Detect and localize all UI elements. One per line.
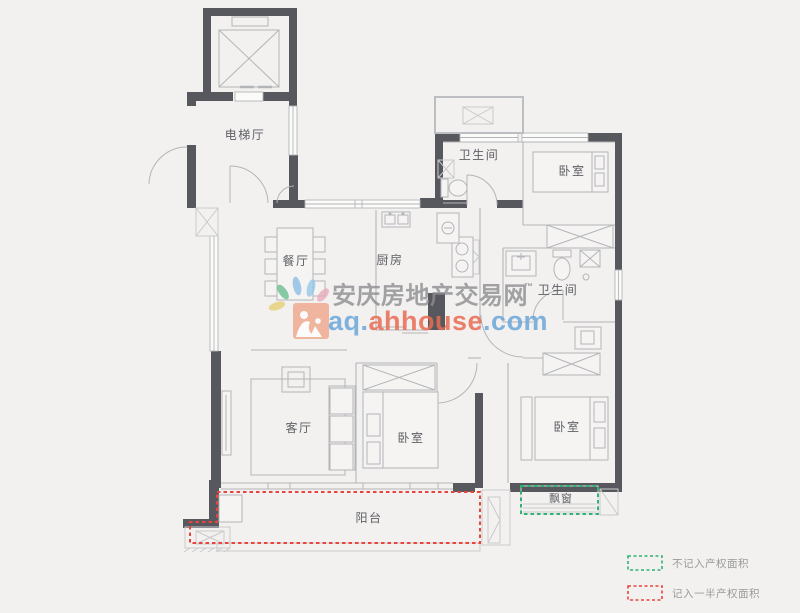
balcony-box — [219, 495, 242, 522]
label-bedroom-mid: 卧室 — [397, 430, 424, 445]
label-bay-window: 飘窗 — [549, 491, 573, 505]
legend-label-not-counted: 不记入产权面积 — [672, 557, 749, 570]
kitchen-sink — [382, 212, 410, 227]
watermark: 安庆房地产交易网 ™ aq.ahhouse.com — [268, 276, 548, 339]
duct-box-left — [196, 208, 218, 236]
balcony-slider-window — [221, 483, 453, 489]
toilet-mid — [553, 250, 571, 280]
washing-machine — [437, 213, 459, 243]
watermark-tm: ™ — [524, 281, 533, 291]
watermark-url: aq.ahhouse.com — [328, 306, 548, 336]
legend-label-half-counted: 记入一半产权面积 — [672, 587, 760, 600]
watermark-url-mid: ahhouse — [369, 306, 484, 336]
bed-mid — [363, 392, 438, 468]
watermark-url-prefix: aq. — [328, 306, 369, 336]
floor-plan-page: 电梯厅 卫生间 卧室 餐厅 厨房 卫生间 客厅 卧室 卧室 阳台 飘窗 安庆房地… — [0, 0, 800, 613]
label-elevator-hall: 电梯厅 — [225, 128, 266, 142]
ac-platform-top — [435, 97, 523, 133]
ac-platform-right — [482, 490, 510, 545]
label-bathroom-top: 卫生间 — [459, 148, 500, 162]
label-living: 客厅 — [285, 420, 312, 435]
legend-swatch-half-counted — [628, 586, 662, 600]
label-balcony: 阳台 — [355, 510, 382, 525]
dresser-right-bedroom — [575, 327, 601, 349]
washer-mid — [580, 250, 600, 280]
toilet-top — [441, 179, 467, 197]
label-kitchen: 厨房 — [376, 252, 403, 267]
legend: 不记入产权面积 记入一半产权面积 — [628, 556, 760, 600]
label-bedroom-top: 卧室 — [558, 163, 585, 178]
floor-plan-canvas: 电梯厅 卫生间 卧室 餐厅 厨房 卫生间 客厅 卧室 卧室 阳台 飘窗 安庆房地… — [0, 0, 800, 613]
legend-swatch-not-counted — [628, 556, 662, 570]
elevator-car — [219, 17, 279, 87]
balcony-edge — [184, 527, 480, 552]
tv-cabinet — [222, 391, 231, 455]
wardrobe-right — [543, 353, 600, 375]
label-dining: 餐厅 — [282, 253, 309, 268]
watermark-url-suffix: .com — [483, 306, 548, 336]
sofa — [329, 386, 355, 470]
label-bedroom-right: 卧室 — [553, 419, 580, 434]
wardrobe-top-right — [547, 225, 613, 248]
wardrobe-mid — [363, 365, 435, 390]
bathroom-mid-sink — [506, 251, 536, 276]
label-bathroom-mid: 卫生间 — [538, 283, 579, 297]
